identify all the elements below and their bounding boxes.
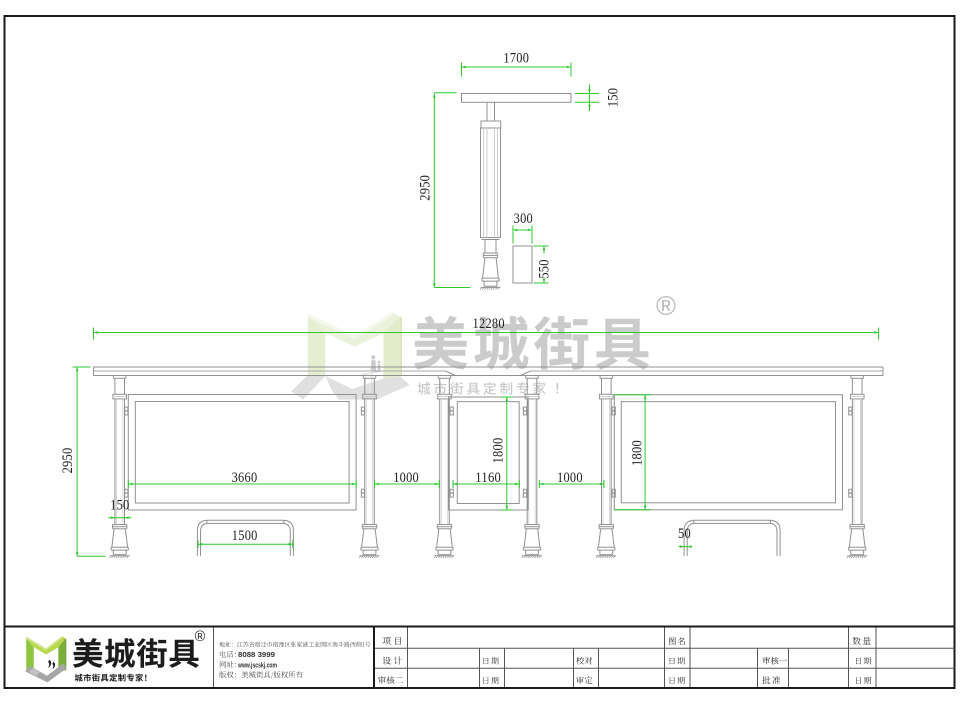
svg-text:2950: 2950 (60, 448, 76, 474)
svg-text:150: 150 (605, 88, 621, 107)
svg-text:300: 300 (514, 211, 533, 227)
svg-text:3660: 3660 (232, 470, 258, 486)
svg-text:2950: 2950 (417, 175, 433, 201)
svg-text:®: ® (195, 629, 206, 645)
svg-text:1700: 1700 (503, 51, 529, 67)
svg-text:12280: 12280 (473, 316, 505, 332)
svg-text:50: 50 (678, 526, 691, 542)
svg-text:1800: 1800 (491, 438, 507, 464)
svg-text:1000: 1000 (557, 470, 583, 486)
svg-text:8088 3999: 8088 3999 (238, 652, 275, 659)
svg-text:®: ® (656, 291, 676, 321)
svg-text:1000: 1000 (393, 470, 419, 486)
svg-text:550: 550 (537, 259, 553, 278)
svg-text:150: 150 (110, 497, 129, 513)
svg-text:1800: 1800 (630, 440, 646, 466)
svg-text:1160: 1160 (475, 470, 501, 486)
svg-text:www.jscskj.com: www.jscskj.com (237, 662, 277, 669)
svg-text:1500: 1500 (232, 528, 258, 544)
